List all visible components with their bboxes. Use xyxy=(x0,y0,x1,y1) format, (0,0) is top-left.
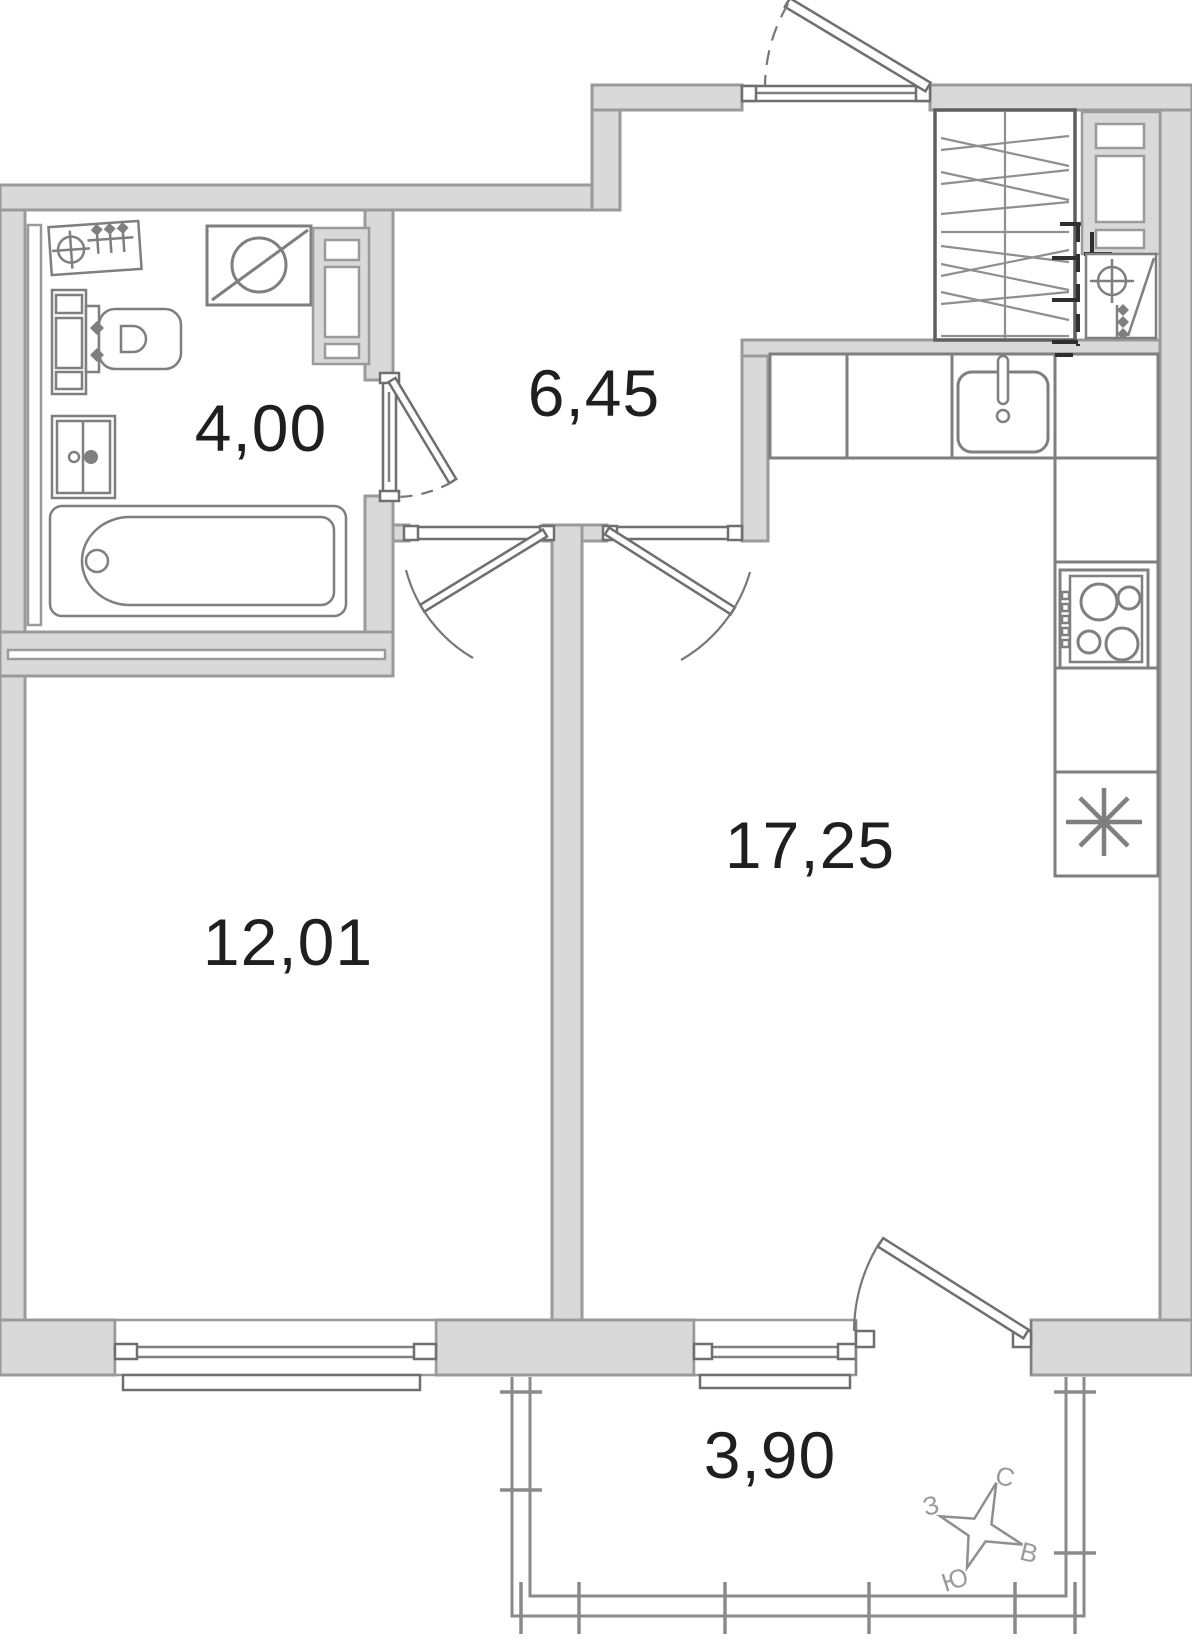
sink-cabinet-icon xyxy=(52,416,115,498)
window-sill xyxy=(700,1375,850,1388)
hallway-fixtures xyxy=(935,110,1160,346)
window-sill xyxy=(123,1375,420,1390)
balcony-door xyxy=(854,1238,1031,1375)
room-area-balcony: 3,90 xyxy=(704,1417,836,1493)
room-area-kitchen-living: 17,25 xyxy=(725,807,895,883)
balcony-glazing xyxy=(500,1377,1096,1634)
bathroom-wall-lining-left xyxy=(28,225,41,625)
bathtub-icon xyxy=(50,506,346,616)
washing-machine-icon xyxy=(207,226,311,305)
bedroom-window xyxy=(115,1320,436,1390)
room-area-hallway: 6,45 xyxy=(528,355,660,431)
entrance-door xyxy=(742,0,931,101)
washbasin-icon xyxy=(48,221,141,275)
kitchen-window xyxy=(694,1320,856,1388)
wardrobe-icon xyxy=(935,110,1075,340)
bathroom-duct-icon xyxy=(313,228,369,364)
kitchen-door xyxy=(603,526,750,660)
bathroom-door xyxy=(380,373,456,501)
bedroom-door xyxy=(404,526,554,658)
entry-duct-icon xyxy=(1082,112,1160,254)
room-area-bedroom: 12,01 xyxy=(203,904,373,980)
bathroom-wall-lining-bottom xyxy=(8,650,385,659)
towel-radiator-icon xyxy=(52,290,86,394)
toilet-icon xyxy=(86,306,181,372)
utility-sink-icon xyxy=(1086,254,1156,340)
floor-plan-drawing xyxy=(0,0,1192,1640)
room-area-bathroom: 4,00 xyxy=(195,390,327,466)
floor-plan: 4,00 6,45 12,01 17,25 3,90 С З В Ю xyxy=(0,0,1192,1640)
stove-icon xyxy=(1060,570,1148,668)
kitchen-fixtures xyxy=(770,354,1158,876)
